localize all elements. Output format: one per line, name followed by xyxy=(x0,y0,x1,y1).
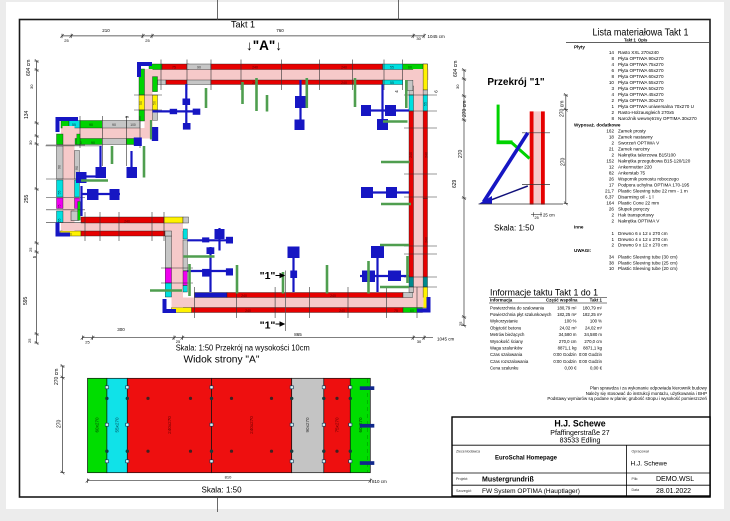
svg-text:26: 26 xyxy=(609,176,615,181)
svg-text:82: 82 xyxy=(609,170,615,175)
svg-text:Cena szalunku: Cena szalunku xyxy=(490,366,519,371)
svg-text:Opis: Opis xyxy=(638,37,648,42)
svg-text:6,37: 6,37 xyxy=(605,194,614,199)
svg-text:2: 2 xyxy=(611,152,614,157)
svg-text:25: 25 xyxy=(64,38,69,43)
svg-text:604 cm: 604 cm xyxy=(26,60,32,76)
svg-text:Przekrój "1": Przekrój "1" xyxy=(487,77,545,88)
svg-text:Zamek nastawny: Zamek nastawny xyxy=(618,134,653,139)
svg-text:1: 1 xyxy=(611,237,614,242)
svg-text:4: 4 xyxy=(611,62,614,67)
svg-text:629: 629 xyxy=(452,179,458,188)
svg-text:180,79 m²: 180,79 m² xyxy=(583,305,603,310)
svg-text:Szczegół:: Szczegół: xyxy=(456,489,472,493)
svg-text:34,580 m: 34,580 m xyxy=(584,332,602,337)
svg-text:0:00 Godzin: 0:00 Godzin xyxy=(553,359,577,364)
svg-text:Plastic Sleeving tube 22 mm -: Plastic Sleeving tube 22 mm - 1 m xyxy=(618,188,688,193)
svg-text:EuroSchal Homepage: EuroSchal Homepage xyxy=(495,456,558,462)
svg-text:28.01.2022: 28.01.2022 xyxy=(656,488,691,495)
svg-text:Płyta OPTIWA uniwersalna 70x27: Płyta OPTIWA uniwersalna 70x270 U xyxy=(618,104,694,109)
svg-text:Plastic Cone 22 mm: Plastic Cone 22 mm xyxy=(618,200,659,205)
svg-text:12: 12 xyxy=(609,164,615,169)
svg-text:Płyta OPTIWA 50x270: Płyta OPTIWA 50x270 xyxy=(618,86,664,91)
svg-text:50: 50 xyxy=(153,101,157,105)
svg-text:55: 55 xyxy=(58,219,62,223)
svg-text:Nakrętka OPTIMA V: Nakrętka OPTIMA V xyxy=(618,218,660,223)
svg-text:Wykorzystanie: Wykorzystanie xyxy=(490,319,519,324)
svg-text:↓"A"↓: ↓"A"↓ xyxy=(246,38,282,53)
svg-text:Pfaffingerstraße 27: Pfaffingerstraße 27 xyxy=(550,430,610,437)
svg-text:Rasto XXL 270x240: Rasto XXL 270x240 xyxy=(618,50,659,55)
svg-text:DEMO.WSL: DEMO.WSL xyxy=(656,476,694,483)
svg-text:17: 17 xyxy=(609,182,615,187)
svg-text:75x270: 75x270 xyxy=(335,417,340,433)
svg-text:"1": "1" xyxy=(260,320,276,332)
svg-text:90: 90 xyxy=(112,123,116,127)
svg-text:Plan sprawdza i za wykonanie o: Plan sprawdza i za wykonanie odpowiada k… xyxy=(590,386,708,391)
svg-text:30: 30 xyxy=(455,84,460,89)
svg-text:182,25 m²: 182,25 m² xyxy=(557,312,577,317)
svg-text:Ankerstab 75: Ankerstab 75 xyxy=(618,170,646,175)
svg-text:Takt 1: Takt 1 xyxy=(590,298,603,303)
svg-text:2: 2 xyxy=(611,212,614,217)
svg-text:25: 25 xyxy=(145,38,150,43)
svg-text:Skala: 1:50 Przekrój na wyso: Skala: 1:50 Przekrój na wysokości 10cm xyxy=(176,344,310,353)
svg-text:55x270: 55x270 xyxy=(115,417,120,433)
svg-text:Powierzchnia do szalowania: Powierzchnia do szalowania xyxy=(490,305,545,310)
svg-text:Zleceniodawca: Zleceniodawca xyxy=(456,450,480,454)
svg-text:Podpora uchylna OPTIMA 170-195: Podpora uchylna OPTIMA 170-195 xyxy=(618,182,690,187)
svg-text:Skala: 1:50: Skala: 1:50 xyxy=(201,486,242,495)
svg-text:0:00 Godzin: 0:00 Godzin xyxy=(579,352,603,357)
svg-text:240: 240 xyxy=(124,219,130,223)
svg-text:2: 2 xyxy=(611,243,614,248)
svg-text:55: 55 xyxy=(424,102,428,106)
svg-text:Należy się stosować do instruk: Należy się stosować do instrukcji montaż… xyxy=(586,391,707,396)
svg-text:Słupek poręczy: Słupek poręczy xyxy=(618,206,650,211)
svg-text:Nakrętka przegubowa B15-120/12: Nakrętka przegubowa B15-120/120 xyxy=(618,158,691,163)
svg-text:Płyta OPTIWA 90x270: Płyta OPTIWA 90x270 xyxy=(618,56,664,61)
svg-text:0,00 €: 0,00 € xyxy=(565,366,578,371)
svg-text:90: 90 xyxy=(197,66,201,70)
svg-text:4: 4 xyxy=(611,92,614,97)
svg-text:3: 3 xyxy=(611,86,614,91)
svg-text:H.J. Schewe: H.J. Schewe xyxy=(631,461,668,468)
svg-text:55: 55 xyxy=(390,65,394,69)
svg-text:25: 25 xyxy=(535,216,539,220)
svg-text:270 cm: 270 cm xyxy=(54,369,60,385)
svg-text:25: 25 xyxy=(28,247,33,252)
svg-text:162: 162 xyxy=(606,128,614,133)
svg-text:Płyty: Płyty xyxy=(574,44,585,49)
svg-text:Zamek narożny: Zamek narożny xyxy=(618,146,650,151)
svg-text:240: 240 xyxy=(409,152,413,158)
svg-text:270,0 cm: 270,0 cm xyxy=(559,339,577,344)
svg-text:Plastic Sleeving tube (30 cm): Plastic Sleeving tube (30 cm) xyxy=(618,255,678,260)
svg-text:270,0 cm: 270,0 cm xyxy=(584,339,602,344)
svg-text:Metrów bieżących: Metrów bieżących xyxy=(490,332,525,337)
svg-text:210: 210 xyxy=(102,28,110,33)
svg-text:240: 240 xyxy=(245,309,251,313)
svg-text:55: 55 xyxy=(58,191,62,195)
svg-text:0:00 Godzin: 0:00 Godzin xyxy=(579,359,603,364)
svg-text:Inne: Inne xyxy=(574,225,584,230)
svg-text:34: 34 xyxy=(609,255,615,260)
svg-text:Projekt:: Projekt: xyxy=(456,477,468,481)
svg-text:240: 240 xyxy=(341,66,347,70)
svg-text:14: 14 xyxy=(609,50,615,55)
svg-text:Czas szalowania: Czas szalowania xyxy=(490,352,523,357)
svg-text:Plastic Sleeving tube (20 cm): Plastic Sleeving tube (20 cm) xyxy=(618,266,678,271)
svg-text:90x270: 90x270 xyxy=(305,417,310,433)
svg-text:25: 25 xyxy=(458,321,463,326)
svg-text:Hak transportowy: Hak transportowy xyxy=(618,212,654,217)
svg-text:255: 255 xyxy=(24,194,30,203)
svg-text:Wspornik pomostu roboczego: Wspornik pomostu roboczego xyxy=(618,176,679,181)
svg-text:"1": "1" xyxy=(260,270,276,282)
svg-text:90: 90 xyxy=(58,165,62,169)
svg-text:Płyta OPTIWA 30x270: Płyta OPTIWA 30x270 xyxy=(618,98,664,103)
svg-text:Drewno 6 x 12 x 270 cm: Drewno 6 x 12 x 270 cm xyxy=(618,231,668,236)
svg-text:Płyta OPTIWA 45x270: Płyta OPTIWA 45x270 xyxy=(618,92,664,97)
svg-text:270: 270 xyxy=(561,157,567,166)
svg-text:Takt 1: Takt 1 xyxy=(624,37,636,42)
svg-text:Plik:: Plik: xyxy=(632,477,639,481)
svg-text:865: 865 xyxy=(294,332,302,337)
svg-text:30: 30 xyxy=(416,36,421,41)
svg-text:25: 25 xyxy=(27,338,32,343)
svg-text:164: 164 xyxy=(606,200,614,205)
svg-text:152: 152 xyxy=(606,158,614,163)
svg-text:FW System OPTIMA (Hauptlager): FW System OPTIMA (Hauptlager) xyxy=(482,488,580,495)
svg-text:2: 2 xyxy=(611,218,614,223)
svg-text:90: 90 xyxy=(91,141,95,145)
svg-text:300: 300 xyxy=(117,327,125,332)
svg-text:Opracował: Opracował xyxy=(632,450,649,454)
svg-text:Waga szalunków: Waga szalunków xyxy=(490,346,523,351)
svg-text:Wyposaż. dodatkowe: Wyposaż. dodatkowe xyxy=(574,122,621,127)
svg-text:240: 240 xyxy=(341,81,347,85)
svg-text:8: 8 xyxy=(611,116,614,121)
svg-text:Widok strony "A": Widok strony "A" xyxy=(184,354,260,366)
svg-text:60: 60 xyxy=(410,309,414,313)
svg-text:240: 240 xyxy=(330,294,336,298)
svg-text:2: 2 xyxy=(611,98,614,103)
svg-text:760: 760 xyxy=(276,28,284,33)
svg-text:1: 1 xyxy=(611,231,614,236)
svg-text:810: 810 xyxy=(225,475,232,480)
svg-text:100 %: 100 % xyxy=(564,319,576,324)
svg-text:1045 cm: 1045 cm xyxy=(428,34,446,39)
svg-text:Rasto-Holzausgleich 270x5: Rasto-Holzausgleich 270x5 xyxy=(618,110,674,115)
svg-text:Wysokość ściany: Wysokość ściany xyxy=(490,339,524,344)
svg-text:Płyta OPTIWA 65x270: Płyta OPTIWA 65x270 xyxy=(618,68,664,73)
svg-text:Data: Data xyxy=(632,488,640,492)
svg-text:30: 30 xyxy=(28,140,33,145)
svg-text:75: 75 xyxy=(394,309,398,313)
svg-text:Część wspólna: Część wspólna xyxy=(546,298,578,303)
svg-text:38: 38 xyxy=(609,260,615,265)
svg-text:Takt 1: Takt 1 xyxy=(231,20,255,30)
svg-text:90: 90 xyxy=(75,166,79,170)
svg-text:2: 2 xyxy=(611,110,614,115)
svg-text:1: 1 xyxy=(611,104,614,109)
svg-text:Objętość betonu: Objętość betonu xyxy=(490,325,522,330)
svg-text:0:00 Godzin: 0:00 Godzin xyxy=(553,352,577,357)
svg-text:Płyta OPTIWA 75x270: Płyta OPTIWA 75x270 xyxy=(618,62,664,67)
svg-text:10: 10 xyxy=(609,80,615,85)
svg-text:H.J. Schewe: H.J. Schewe xyxy=(554,419,605,429)
svg-text:34,580 m: 34,580 m xyxy=(559,332,577,337)
svg-text:Drewno 4 x 12 x 270 cm: Drewno 4 x 12 x 270 cm xyxy=(618,237,668,242)
svg-text:Powierzchnia płyt szalunkowych: Powierzchnia płyt szalunkowych xyxy=(490,312,552,317)
svg-text:60: 60 xyxy=(408,65,412,69)
svg-text:6: 6 xyxy=(611,68,614,73)
svg-text:Plastic Sleeving tube (25 cm): Plastic Sleeving tube (25 cm) xyxy=(618,260,678,265)
svg-text:24,02 m³: 24,02 m³ xyxy=(585,325,603,330)
svg-text:90: 90 xyxy=(89,123,93,127)
svg-text:30: 30 xyxy=(29,84,34,89)
svg-text:270 cm: 270 cm xyxy=(560,101,566,117)
svg-text:Płyta OPTIWA 55x270: Płyta OPTIWA 55x270 xyxy=(618,80,664,85)
svg-text:8871,1 kg: 8871,1 kg xyxy=(583,346,602,351)
svg-text:Disarming oil - 1 l: Disarming oil - 1 l xyxy=(618,194,653,199)
svg-text:30: 30 xyxy=(417,339,422,344)
svg-text:240: 240 xyxy=(425,152,429,158)
svg-text:240: 240 xyxy=(425,237,429,243)
svg-text:75: 75 xyxy=(172,66,176,70)
svg-text:25: 25 xyxy=(85,339,90,344)
svg-text:240: 240 xyxy=(252,66,258,70)
svg-text:21: 21 xyxy=(609,146,615,151)
svg-text:2: 2 xyxy=(611,140,614,145)
svg-text:60x270: 60x270 xyxy=(95,417,100,433)
svg-text:270: 270 xyxy=(458,149,464,158)
svg-text:Skala: 1:50: Skala: 1:50 xyxy=(494,224,535,233)
svg-text:8: 8 xyxy=(611,56,614,61)
svg-text:Podstawy wymiarów są podane w: Podstawy wymiarów są podane w planie; gr… xyxy=(547,396,707,401)
svg-text:10: 10 xyxy=(609,266,615,271)
svg-text:Czas rozszalowania: Czas rozszalowania xyxy=(490,359,529,364)
svg-text:26: 26 xyxy=(609,206,615,211)
svg-text:UWAGI:: UWAGI: xyxy=(574,248,592,253)
svg-text:18: 18 xyxy=(609,134,615,139)
svg-text:180,79 m²: 180,79 m² xyxy=(557,305,577,310)
svg-text:50: 50 xyxy=(139,101,143,105)
svg-text:Sworzeń OPTIWA V: Sworzeń OPTIWA V xyxy=(618,140,660,145)
svg-text:Płyta OPTIWA 60x270: Płyta OPTIWA 60x270 xyxy=(618,74,664,79)
svg-text:25 cm: 25 cm xyxy=(543,213,555,218)
svg-text:182,25 m²: 182,25 m² xyxy=(583,312,603,317)
svg-text:100 %: 100 % xyxy=(590,319,602,324)
svg-text:595: 595 xyxy=(23,296,29,305)
svg-text:Zamek prosty: Zamek prosty xyxy=(618,128,647,133)
svg-text:1045 cm: 1045 cm xyxy=(437,336,455,341)
svg-text:83533 Edling: 83533 Edling xyxy=(560,437,601,444)
svg-text:21,7: 21,7 xyxy=(605,188,614,193)
svg-text:55: 55 xyxy=(390,81,394,85)
svg-text:134: 134 xyxy=(24,110,30,119)
svg-text:Drewno 9 x 12 x 270 cm: Drewno 9 x 12 x 270 cm xyxy=(618,243,668,248)
svg-text:8871,1 kg: 8871,1 kg xyxy=(558,346,577,351)
svg-text:270: 270 xyxy=(57,419,63,428)
svg-text:Mustergrundriß: Mustergrundriß xyxy=(482,476,534,483)
svg-text:75: 75 xyxy=(58,205,62,209)
svg-text:270 cm: 270 cm xyxy=(462,101,468,117)
svg-text:240x270: 240x270 xyxy=(249,416,254,434)
svg-text:24,02 m³: 24,02 m³ xyxy=(560,325,578,330)
svg-text:Narożnik wewnętrzny OPTIMA 30x: Narożnik wewnętrzny OPTIMA 30x270 xyxy=(618,116,697,121)
svg-text:100: 100 xyxy=(130,123,136,127)
svg-text:810 cm: 810 cm xyxy=(372,479,387,484)
svg-text:8: 8 xyxy=(611,74,614,79)
svg-text:240: 240 xyxy=(241,294,247,298)
svg-text:604 cm: 604 cm xyxy=(453,61,459,77)
svg-text:0,00 €: 0,00 € xyxy=(590,366,603,371)
svg-text:Ankermutter 220: Ankermutter 220 xyxy=(618,164,652,169)
svg-text:Nakrętka talerzowa B15/100: Nakrętka talerzowa B15/100 xyxy=(618,152,676,157)
svg-text:240: 240 xyxy=(339,309,345,313)
svg-text:240x270: 240x270 xyxy=(167,416,172,434)
svg-text:Informacja: Informacja xyxy=(490,298,513,303)
